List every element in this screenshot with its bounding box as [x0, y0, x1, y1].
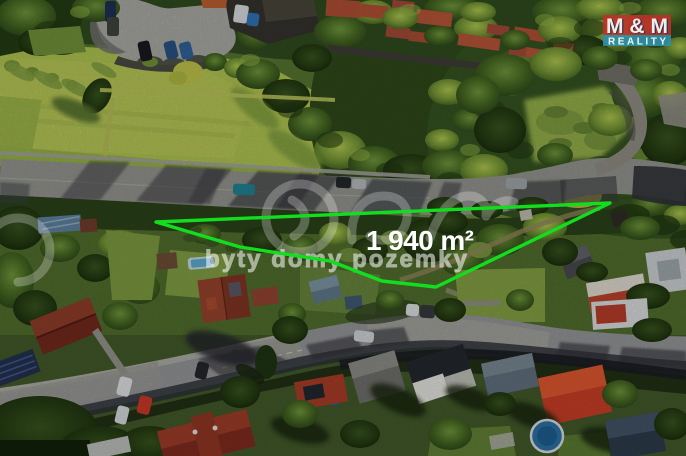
svg-text:1 940 m²: 1 940 m²: [366, 225, 474, 256]
svg-text:M&M: M&M: [606, 15, 668, 38]
